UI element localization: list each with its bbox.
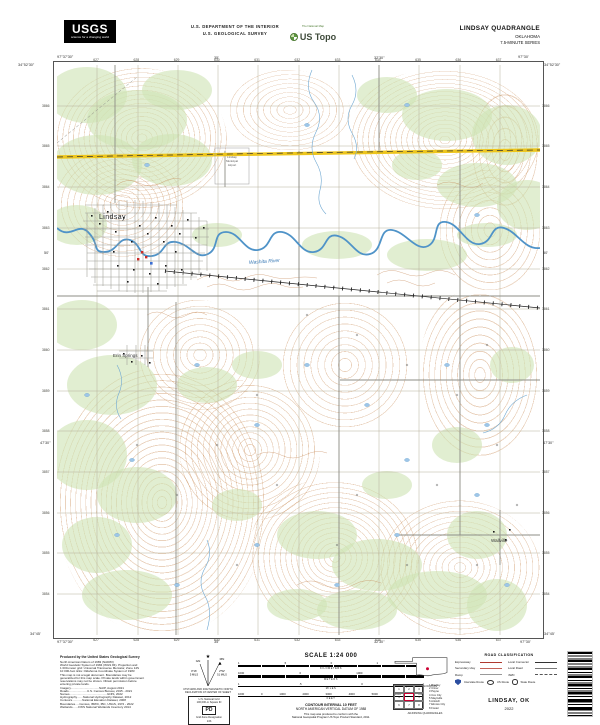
- map-canvas: Lindsay Municipal Airport Lindsay Erin S…: [57, 65, 540, 635]
- usgs-logo-tagline: science for a changing world: [64, 36, 116, 39]
- barcode: [568, 652, 592, 716]
- quad-state: OKLAHOMA: [460, 34, 540, 41]
- gn-mils: 5 MILS: [190, 673, 198, 677]
- fourwd-label: 4WD: [508, 673, 535, 677]
- hamlet-label: Wallville: [491, 538, 508, 543]
- corner-bl-lat: 34°45': [30, 632, 41, 636]
- grid-tick: 3860: [42, 348, 50, 352]
- expressway-label: Expressway: [455, 660, 480, 664]
- us-route-label: US Route: [497, 680, 509, 684]
- graticule-left-b: 47'30": [40, 441, 51, 445]
- oklahoma-outline: [393, 653, 449, 679]
- conformance-line-2: National Geospatial Program US Topo Prod…: [238, 716, 424, 719]
- grid-tick: 3856: [42, 511, 50, 515]
- quad-location-dot: [426, 667, 429, 670]
- grid-tick: 3861: [42, 307, 50, 311]
- production-credits: Produced by the United States Geological…: [60, 656, 185, 709]
- fourwd-line: [535, 674, 557, 675]
- grid-tick: 3855: [42, 551, 50, 555]
- road-class-row: Secondary Hwy Local Road: [455, 666, 563, 670]
- grid-tick: 3857: [42, 470, 50, 474]
- grid-tick: 3863: [42, 226, 50, 230]
- imprint-name: LINDSAY, OK: [455, 698, 563, 704]
- usng-square-label: 100,000-m Square ID: [189, 701, 229, 704]
- local-road-line: [535, 668, 557, 669]
- village-label: Erin Springs: [113, 353, 138, 358]
- grid-tick: 3865: [42, 144, 50, 148]
- graticule-bottom-a: 35': [214, 640, 219, 644]
- ramp-line: [480, 674, 502, 675]
- declination-diagram: ★ GN MN 0°16' 5 MILS 2°52' 51 MILS: [184, 652, 232, 692]
- usng-box: U.S. National Grid 100,000-m Square ID P…: [188, 696, 230, 725]
- gn-degrees: 0°16': [191, 669, 197, 673]
- gn-label: GN: [196, 659, 201, 663]
- corner-bl-lon: 97°37'30": [57, 640, 73, 644]
- quad-name: LINDSAY QUADRANGLE: [460, 24, 540, 34]
- road-class-title: ROAD CLASSIFICATION: [455, 653, 563, 657]
- usgs-topo-sheet: USGS science for a changing world U.S. D…: [0, 0, 600, 725]
- railroad: [165, 271, 540, 308]
- secondary-hwy-line: [480, 668, 502, 669]
- mn-mils: 51 MILS: [217, 673, 227, 677]
- expressway-line: [480, 662, 502, 663]
- state-locator: QUADRANGLE LOCATION: [393, 653, 449, 688]
- airport-label-3: Airport: [228, 163, 236, 167]
- graticule-top-a: 35': [214, 56, 219, 60]
- road-classification: ROAD CLASSIFICATION Expressway Local Con…: [455, 653, 563, 685]
- local-connector-line: [535, 662, 557, 663]
- mn-label: MN: [220, 657, 225, 661]
- state-route-label: State Route: [521, 680, 536, 684]
- local-road-label: Local Road: [508, 666, 535, 670]
- town-label: Lindsay: [99, 214, 126, 221]
- corner-br-lon: 97°30': [520, 640, 531, 644]
- grid-tick: 3859: [42, 389, 50, 393]
- sheet-imprint: LINDSAY, OK 2022: [455, 698, 563, 711]
- declination-caption-2: DECLINATION AT CENTER OF SHEET: [170, 691, 246, 694]
- ramp-label: Ramp: [455, 673, 480, 677]
- route-shields-row: Interstate Route US Route State Route: [455, 679, 563, 685]
- usng-square-id: PD: [202, 706, 217, 716]
- usgs-logo-word: USGS: [64, 23, 116, 35]
- grid-tick: 3864: [42, 185, 50, 189]
- graticule-right-b: 47'30": [543, 441, 554, 445]
- quadrangle-title: LINDSAY QUADRANGLE OKLAHOMA 7.5-MINUTE S…: [460, 24, 540, 47]
- quad-series: 7.5-MINUTE SERIES: [460, 40, 540, 46]
- corner-tr-lat: 34°52'30": [544, 63, 560, 67]
- ustopo-logo: The National Map US Topo: [278, 24, 348, 46]
- secondary-hwy-label: Secondary Hwy: [455, 666, 480, 670]
- state-route-shield-icon: [512, 679, 518, 685]
- corner-tr-lon: 97°30': [518, 55, 529, 59]
- interstate-shield-icon: [455, 679, 461, 685]
- road-class-row: Expressway Local Connector: [455, 660, 563, 664]
- graticule-top-b: 32'30": [374, 56, 385, 60]
- credits-lines: North American Datum of 1983 (NAD83)Worl…: [60, 661, 185, 710]
- ustopo-name: US Topo: [300, 32, 336, 42]
- usgs-logo: USGS science for a changing world: [64, 20, 116, 43]
- road-class-row: Ramp 4WD: [455, 673, 563, 677]
- river-label: Washita River: [249, 258, 281, 266]
- grid-tick: 3854: [42, 592, 50, 596]
- declination-caption: UTM GRID AND 2022 MAGNETIC NORTH DECLINA…: [170, 688, 246, 694]
- grid-tick: 3862: [42, 267, 50, 271]
- grid-tick: 3866: [42, 104, 50, 108]
- usng-zone: 14S: [189, 720, 229, 723]
- corner-tl-lon: 97°37'30": [57, 55, 73, 59]
- true-north-star: ★: [206, 654, 211, 660]
- local-connector-label: Local Connector: [508, 660, 535, 664]
- mn-degrees: 2°52': [219, 669, 225, 673]
- interstate-route-label: Interstate Route: [464, 680, 484, 684]
- grid-tick: 3858: [42, 429, 50, 433]
- imprint-year: 2022: [455, 706, 563, 711]
- graticule-bottom-b: 32'30": [374, 640, 385, 644]
- corner-br-lat: 34°45': [544, 632, 555, 636]
- corner-tl-lat: 34°52'30": [18, 63, 34, 67]
- graticule-left-a: 50': [44, 251, 49, 255]
- us-route-shield-icon: [487, 680, 494, 685]
- globe-icon: [290, 33, 298, 41]
- adjoining-caption: ADJOINING QUADRANGLES: [393, 712, 457, 715]
- adjoining-grid: 12345678: [393, 684, 423, 710]
